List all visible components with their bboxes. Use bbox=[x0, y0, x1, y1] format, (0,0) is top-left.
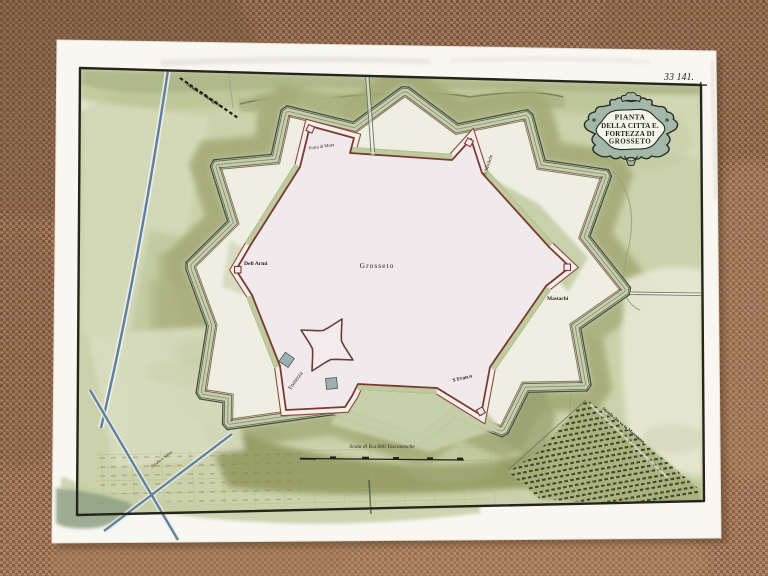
svg-text:Mastachi: Mastachi bbox=[547, 296, 569, 302]
svg-text:Dell Armi: Dell Armi bbox=[244, 261, 268, 267]
svg-text:DELLA CITTA E.: DELLA CITTA E. bbox=[601, 122, 659, 130]
svg-text:GROSSETO: GROSSETO bbox=[609, 138, 651, 146]
svg-text:Scala di B.a 600 Toscanesche: Scala di B.a 600 Toscanesche bbox=[349, 444, 415, 450]
svg-text:33 141.: 33 141. bbox=[663, 72, 694, 83]
svg-text:PIANTA: PIANTA bbox=[615, 113, 646, 122]
svg-text:Grosseto: Grosseto bbox=[360, 261, 395, 270]
